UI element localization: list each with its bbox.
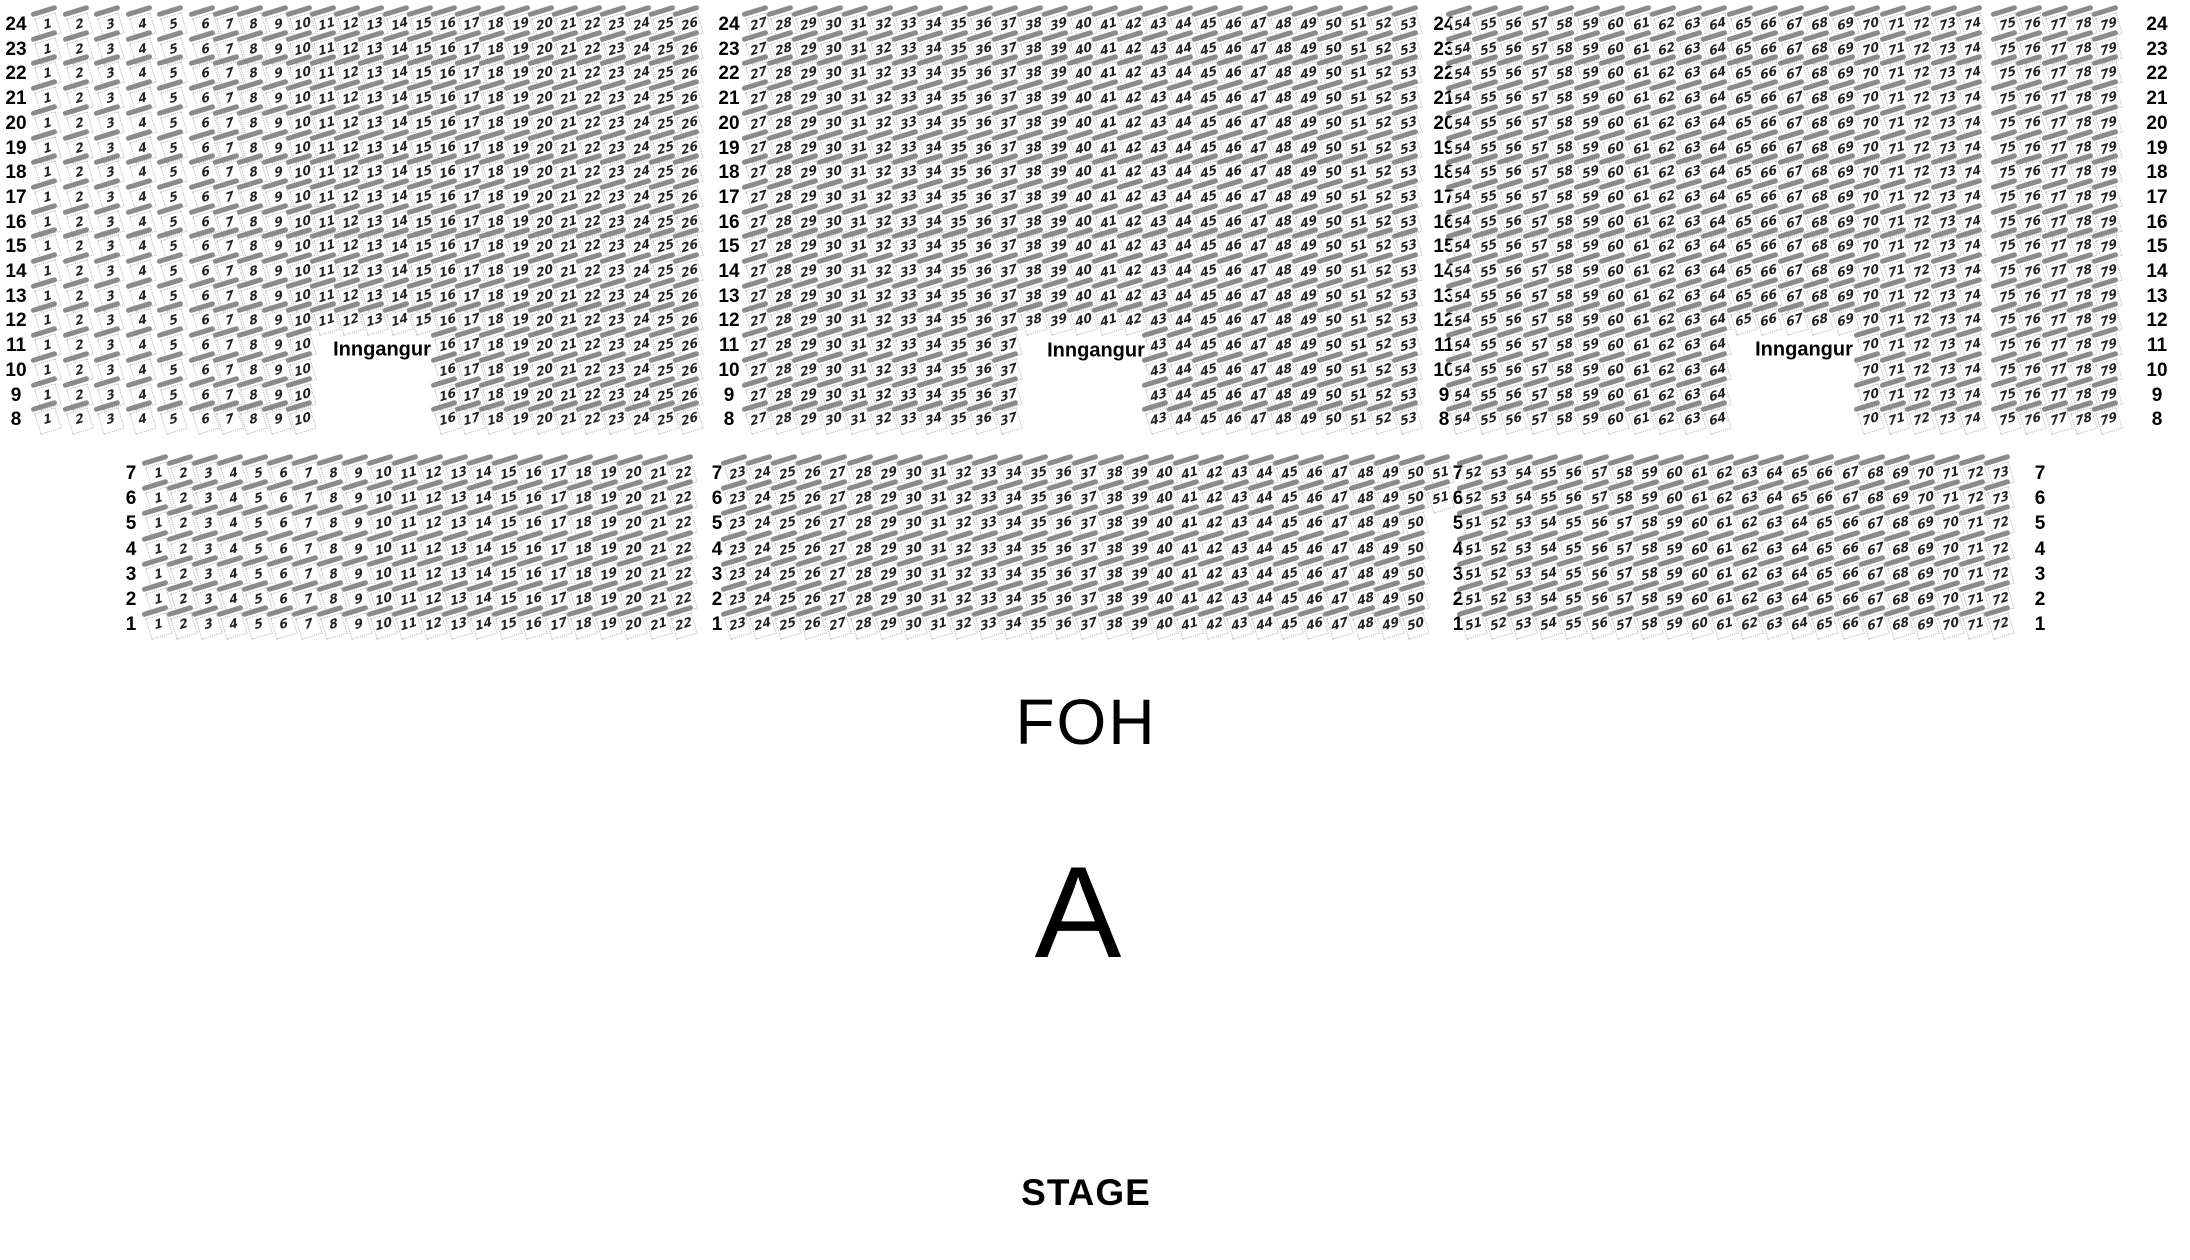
seat-number: 37 (998, 408, 1020, 434)
seat[interactable]: 4 (129, 407, 156, 434)
seat-number: 16 (523, 613, 545, 639)
seat-number: 12 (340, 309, 362, 335)
row-label: 12 (2146, 310, 2167, 332)
seat[interactable]: 64 (1704, 407, 1731, 434)
seat-number: 59 (1579, 408, 1601, 434)
seat-number: 61 (1714, 613, 1736, 639)
row-label: 13 (718, 286, 739, 308)
seat-number: 36 (973, 408, 995, 434)
seat-number: 31 (928, 613, 950, 639)
seat-number: 34 (1003, 613, 1025, 639)
seat-number: 32 (953, 613, 975, 639)
seat-number: 66 (1839, 613, 1861, 639)
seat-number: 51 (1430, 487, 1452, 513)
seat-number: 4 (223, 613, 245, 639)
seat[interactable]: 22 (670, 612, 697, 639)
row-label: 16 (5, 212, 26, 234)
row-label: 5 (2035, 513, 2046, 535)
seat-number: 73 (1936, 408, 1958, 434)
seat-number: 29 (877, 613, 899, 639)
seat-number: 56 (1588, 613, 1610, 639)
seat[interactable]: 26 (676, 407, 703, 434)
row-label: 22 (2146, 63, 2167, 85)
row-label: 13 (5, 286, 26, 308)
seat-number: 43 (1229, 613, 1251, 639)
seat-number: 11 (398, 613, 420, 639)
row-label: 20 (2146, 113, 2167, 135)
seat-number: 37 (1078, 613, 1100, 639)
seat-number: 49 (1298, 408, 1320, 434)
seat-number: 36 (1053, 613, 1075, 639)
seat[interactable]: 53 (1395, 407, 1422, 434)
row-label: 15 (5, 236, 26, 258)
seat[interactable]: 79 (2095, 407, 2122, 434)
seat-number: 7 (219, 408, 241, 434)
row-label: 10 (2146, 360, 2167, 382)
stage-label: STAGE (1021, 1172, 1151, 1214)
seat-number: 38 (1023, 309, 1045, 335)
seat-number: 25 (655, 408, 677, 434)
row-label: 7 (2035, 463, 2046, 485)
seat-number: 47 (1248, 408, 1270, 434)
seat-number: 68 (1809, 309, 1831, 335)
seat-number: 61 (1630, 408, 1652, 434)
row-label: 15 (2146, 236, 2167, 258)
seat-number: 71 (1885, 408, 1907, 434)
seat-number: 39 (1128, 613, 1150, 639)
seat[interactable]: 10 (289, 407, 316, 434)
seat-number: 5 (248, 613, 270, 639)
seat-number: 68 (1890, 613, 1912, 639)
seat-number: 48 (1354, 613, 1376, 639)
seat-number: 55 (1477, 408, 1499, 434)
seat-number: 17 (548, 613, 570, 639)
seat-number: 33 (978, 613, 1000, 639)
row-label: 10 (718, 360, 739, 382)
seat-number: 16 (437, 408, 459, 434)
seat-number: 8 (323, 613, 345, 639)
seat-number: 57 (1528, 408, 1550, 434)
seat-number: 26 (679, 408, 701, 434)
row-label: 1 (712, 614, 723, 636)
seat-number: 3 (100, 408, 122, 434)
row-label: 16 (2146, 212, 2167, 234)
seat-number: 20 (534, 408, 556, 434)
row-label: 11 (2147, 335, 2167, 357)
seat-number: 55 (1563, 613, 1585, 639)
row-label: 4 (126, 539, 137, 561)
seat-number: 50 (1405, 613, 1427, 639)
row-label: 14 (2146, 261, 2167, 283)
seat-number: 23 (606, 408, 628, 434)
seat-number: 56 (1503, 408, 1525, 434)
seat-number: 34 (923, 408, 945, 434)
seat-number: 75 (1997, 408, 2019, 434)
seat-number: 49 (1379, 613, 1401, 639)
seat-number: 43 (1148, 408, 1170, 434)
seat-number: 57 (1613, 613, 1635, 639)
seat-number: 5 (163, 408, 185, 434)
seat-number: 28 (852, 613, 874, 639)
row-label: 9 (2152, 385, 2163, 407)
seat-number: 8 (243, 408, 265, 434)
row-label: 24 (2146, 14, 2167, 36)
row-label: 21 (5, 88, 26, 110)
seat-number: 32 (873, 408, 895, 434)
seat-number: 69 (1834, 309, 1856, 335)
row-label: 12 (718, 310, 739, 332)
seat-number: 62 (1739, 613, 1761, 639)
seat-number: 3 (198, 613, 220, 639)
seat-number: 24 (752, 613, 774, 639)
seat-number: 6 (273, 613, 295, 639)
seat-number: 10 (373, 613, 395, 639)
row-label: 21 (2146, 88, 2167, 110)
seat-number: 14 (473, 613, 495, 639)
entrance-label-right: Inngangur (1755, 339, 1853, 362)
seat-number: 71 (1965, 613, 1987, 639)
seat-number: 9 (267, 408, 289, 434)
seat-number: 19 (509, 408, 531, 434)
row-label: 14 (5, 261, 26, 283)
row-label: 2 (126, 589, 137, 611)
row-label: 4 (712, 539, 723, 561)
seat-number: 66 (1758, 309, 1780, 335)
row-label: 17 (718, 187, 739, 209)
seat-number: 51 (1348, 408, 1370, 434)
seat[interactable]: 37 (995, 407, 1022, 434)
seat-number: 25 (777, 613, 799, 639)
seat-number: 13 (364, 309, 386, 335)
row-label: 23 (718, 39, 739, 61)
row-label: 19 (2146, 138, 2167, 160)
seat-number: 78 (2073, 408, 2095, 434)
seat-number: 1 (148, 613, 170, 639)
seat-number: 77 (2047, 408, 2069, 434)
seat-number: 65 (1732, 309, 1754, 335)
row-label: 19 (5, 138, 26, 160)
row-label: 1 (126, 614, 137, 636)
seat-number: 44 (1254, 613, 1276, 639)
seat-number: 40 (1073, 309, 1095, 335)
seat-number: 54 (1538, 613, 1560, 639)
row-label: 1 (2035, 614, 2046, 636)
row-label: 24 (718, 14, 739, 36)
row-label: 12 (5, 310, 26, 332)
row-label: 3 (126, 564, 137, 586)
row-label: 23 (5, 39, 26, 61)
seat-number: 22 (673, 613, 695, 639)
seat[interactable]: 5 (160, 407, 187, 434)
seat-map-canvas: 2423222120191817161514131211109824232221… (0, 0, 2190, 1260)
seat-number: 2 (173, 613, 195, 639)
seat[interactable]: 50 (1402, 612, 1429, 639)
seat-number: 72 (1990, 613, 2012, 639)
seat[interactable]: 1 (34, 407, 61, 434)
seat-number: 26 (802, 613, 824, 639)
seat-number: 51 (1463, 613, 1485, 639)
seat-number: 45 (1198, 408, 1220, 434)
row-label: 13 (2146, 286, 2167, 308)
row-label: 18 (5, 162, 26, 184)
row-label: 7 (126, 463, 137, 485)
entrance-label-left: Inngangur (333, 339, 431, 362)
seat-number: 60 (1605, 408, 1627, 434)
seat-number: 38 (1103, 613, 1125, 639)
seat-number: 9 (348, 613, 370, 639)
seat-number: 72 (1911, 408, 1933, 434)
seat[interactable]: 3 (97, 407, 124, 434)
seat-number: 64 (1707, 408, 1729, 434)
seat-number: 58 (1554, 408, 1576, 434)
seat-number: 63 (1681, 408, 1703, 434)
row-label: 6 (126, 488, 137, 510)
row-label: 17 (5, 187, 26, 209)
seat-number: 19 (598, 613, 620, 639)
seat-number: 60 (1689, 613, 1711, 639)
seat-number: 33 (898, 408, 920, 434)
seat-number: 46 (1304, 613, 1326, 639)
seat-number: 44 (1173, 408, 1195, 434)
row-label: 20 (5, 113, 26, 135)
seat-number: 48 (1273, 408, 1295, 434)
row-label: 22 (5, 63, 26, 85)
row-label: 8 (2152, 409, 2163, 431)
seat-number: 31 (848, 408, 870, 434)
row-label: 20 (718, 113, 739, 135)
row-label: 2 (712, 589, 723, 611)
seat-number: 40 (1154, 613, 1176, 639)
seat-number: 24 (630, 408, 652, 434)
seat-number: 62 (1656, 408, 1678, 434)
seat[interactable]: 2 (66, 407, 93, 434)
row-label: 8 (724, 409, 735, 431)
row-label: 24 (5, 14, 26, 36)
section-letter: A (1035, 837, 1122, 987)
row-label: 23 (2146, 39, 2167, 61)
seat-number: 28 (773, 408, 795, 434)
seat-number: 42 (1123, 309, 1145, 335)
seat-number: 45 (1279, 613, 1301, 639)
seat[interactable]: 74 (1959, 407, 1986, 434)
seat-number: 11 (316, 309, 338, 335)
row-label: 2 (2035, 589, 2046, 611)
seat-number: 13 (448, 613, 470, 639)
row-label: 10 (5, 360, 26, 382)
row-label: 17 (2146, 187, 2167, 209)
seat-number: 14 (388, 309, 410, 335)
seat-number: 74 (1962, 408, 1984, 434)
seat-number: 22 (582, 408, 604, 434)
row-label: 4 (2035, 539, 2046, 561)
row-label: 15 (718, 236, 739, 258)
seat-number: 20 (623, 613, 645, 639)
seat-number: 18 (573, 613, 595, 639)
seat-number: 17 (461, 408, 483, 434)
seat-number: 70 (1860, 408, 1882, 434)
seat-number: 10 (292, 408, 314, 434)
seat-number: 15 (413, 309, 435, 335)
row-label: 3 (2035, 564, 2046, 586)
entrance-label-center: Inngangur (1047, 340, 1145, 363)
seat-number: 76 (2022, 408, 2044, 434)
seat-number: 69 (1915, 613, 1937, 639)
seat-number: 58 (1639, 613, 1661, 639)
row-label: 3 (712, 564, 723, 586)
seat-number: 21 (558, 408, 580, 434)
seat-number: 52 (1488, 613, 1510, 639)
seat-number: 53 (1398, 408, 1420, 434)
row-label: 5 (126, 513, 137, 535)
row-label: 16 (718, 212, 739, 234)
row-label: 14 (718, 261, 739, 283)
seat-number: 67 (1783, 309, 1805, 335)
seat[interactable]: 51 (1427, 486, 1454, 513)
seat-number: 52 (1373, 408, 1395, 434)
seat-number: 4 (131, 408, 153, 434)
seat-number: 70 (1940, 613, 1962, 639)
seat-number: 39 (1048, 309, 1070, 335)
seat-number: 12 (423, 613, 445, 639)
seat-number: 30 (903, 613, 925, 639)
seat-number: 64 (1789, 613, 1811, 639)
row-label: 9 (11, 385, 22, 407)
seat-number: 63 (1764, 613, 1786, 639)
seat-number: 18 (485, 408, 507, 434)
row-label: 19 (718, 138, 739, 160)
row-label: 6 (712, 488, 723, 510)
row-label: 8 (1439, 409, 1450, 431)
seat-number: 15 (498, 613, 520, 639)
seat-number: 65 (1814, 613, 1836, 639)
seat-number: 35 (1028, 613, 1050, 639)
seat-number: 27 (827, 613, 849, 639)
row-label: 21 (718, 88, 739, 110)
seat-number: 59 (1664, 613, 1686, 639)
seat-number: 27 (748, 408, 770, 434)
seat-number: 1 (37, 408, 59, 434)
seat-number: 23 (727, 613, 749, 639)
seat-number: 35 (948, 408, 970, 434)
row-label: 11 (719, 335, 739, 357)
row-label: 8 (11, 409, 22, 431)
seat-number: 21 (648, 613, 670, 639)
seat-number: 7 (298, 613, 320, 639)
row-label: 18 (2146, 162, 2167, 184)
row-label: 22 (718, 63, 739, 85)
seat-number: 29 (798, 408, 820, 434)
row-label: 11 (6, 335, 26, 357)
seat-number: 2 (68, 408, 90, 434)
seat-number: 53 (1513, 613, 1535, 639)
row-label: 18 (718, 162, 739, 184)
row-label: 7 (712, 463, 723, 485)
seat-number: 67 (1864, 613, 1886, 639)
seat-number: 47 (1329, 613, 1351, 639)
seat-number: 79 (2098, 408, 2120, 434)
seat-number: 54 (1452, 408, 1474, 434)
row-label: 6 (2035, 488, 2046, 510)
row-label: 9 (724, 385, 735, 407)
seat[interactable]: 12 (337, 309, 364, 336)
seat-number: 41 (1098, 309, 1120, 335)
seat-number: 41 (1179, 613, 1201, 639)
seat-number: 50 (1323, 408, 1345, 434)
foh-label: FOH (1015, 685, 1156, 759)
seat[interactable]: 72 (1987, 612, 2014, 639)
seat-number: 30 (823, 408, 845, 434)
seat-number: 6 (195, 408, 217, 434)
seat-number: 42 (1204, 613, 1226, 639)
row-label: 5 (712, 513, 723, 535)
seat-number: 46 (1223, 408, 1245, 434)
